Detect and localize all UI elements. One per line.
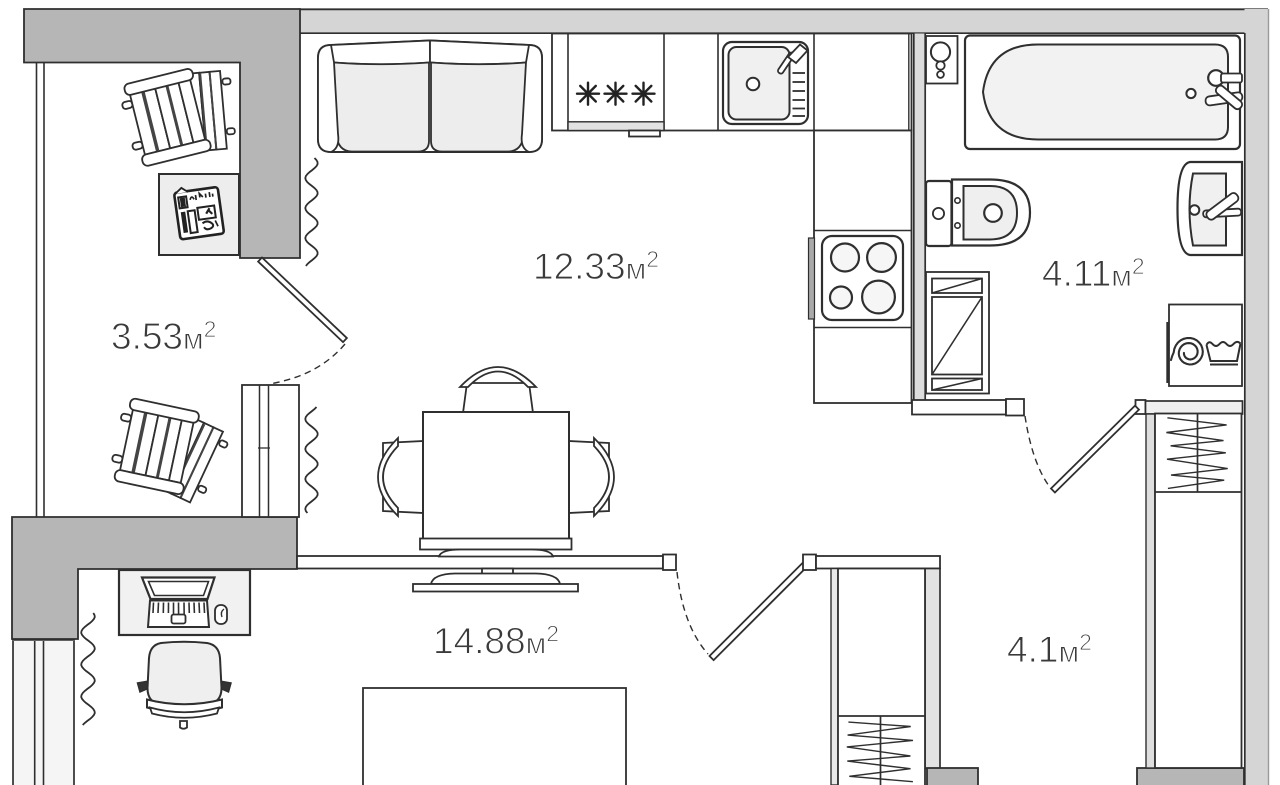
svg-text:3.53м2: 3.53м2 (111, 316, 216, 357)
svg-text:4.11м2: 4.11м2 (1042, 253, 1145, 294)
svg-text:12.33м2: 12.33м2 (533, 246, 659, 287)
svg-text:14.88м2: 14.88м2 (433, 621, 559, 662)
